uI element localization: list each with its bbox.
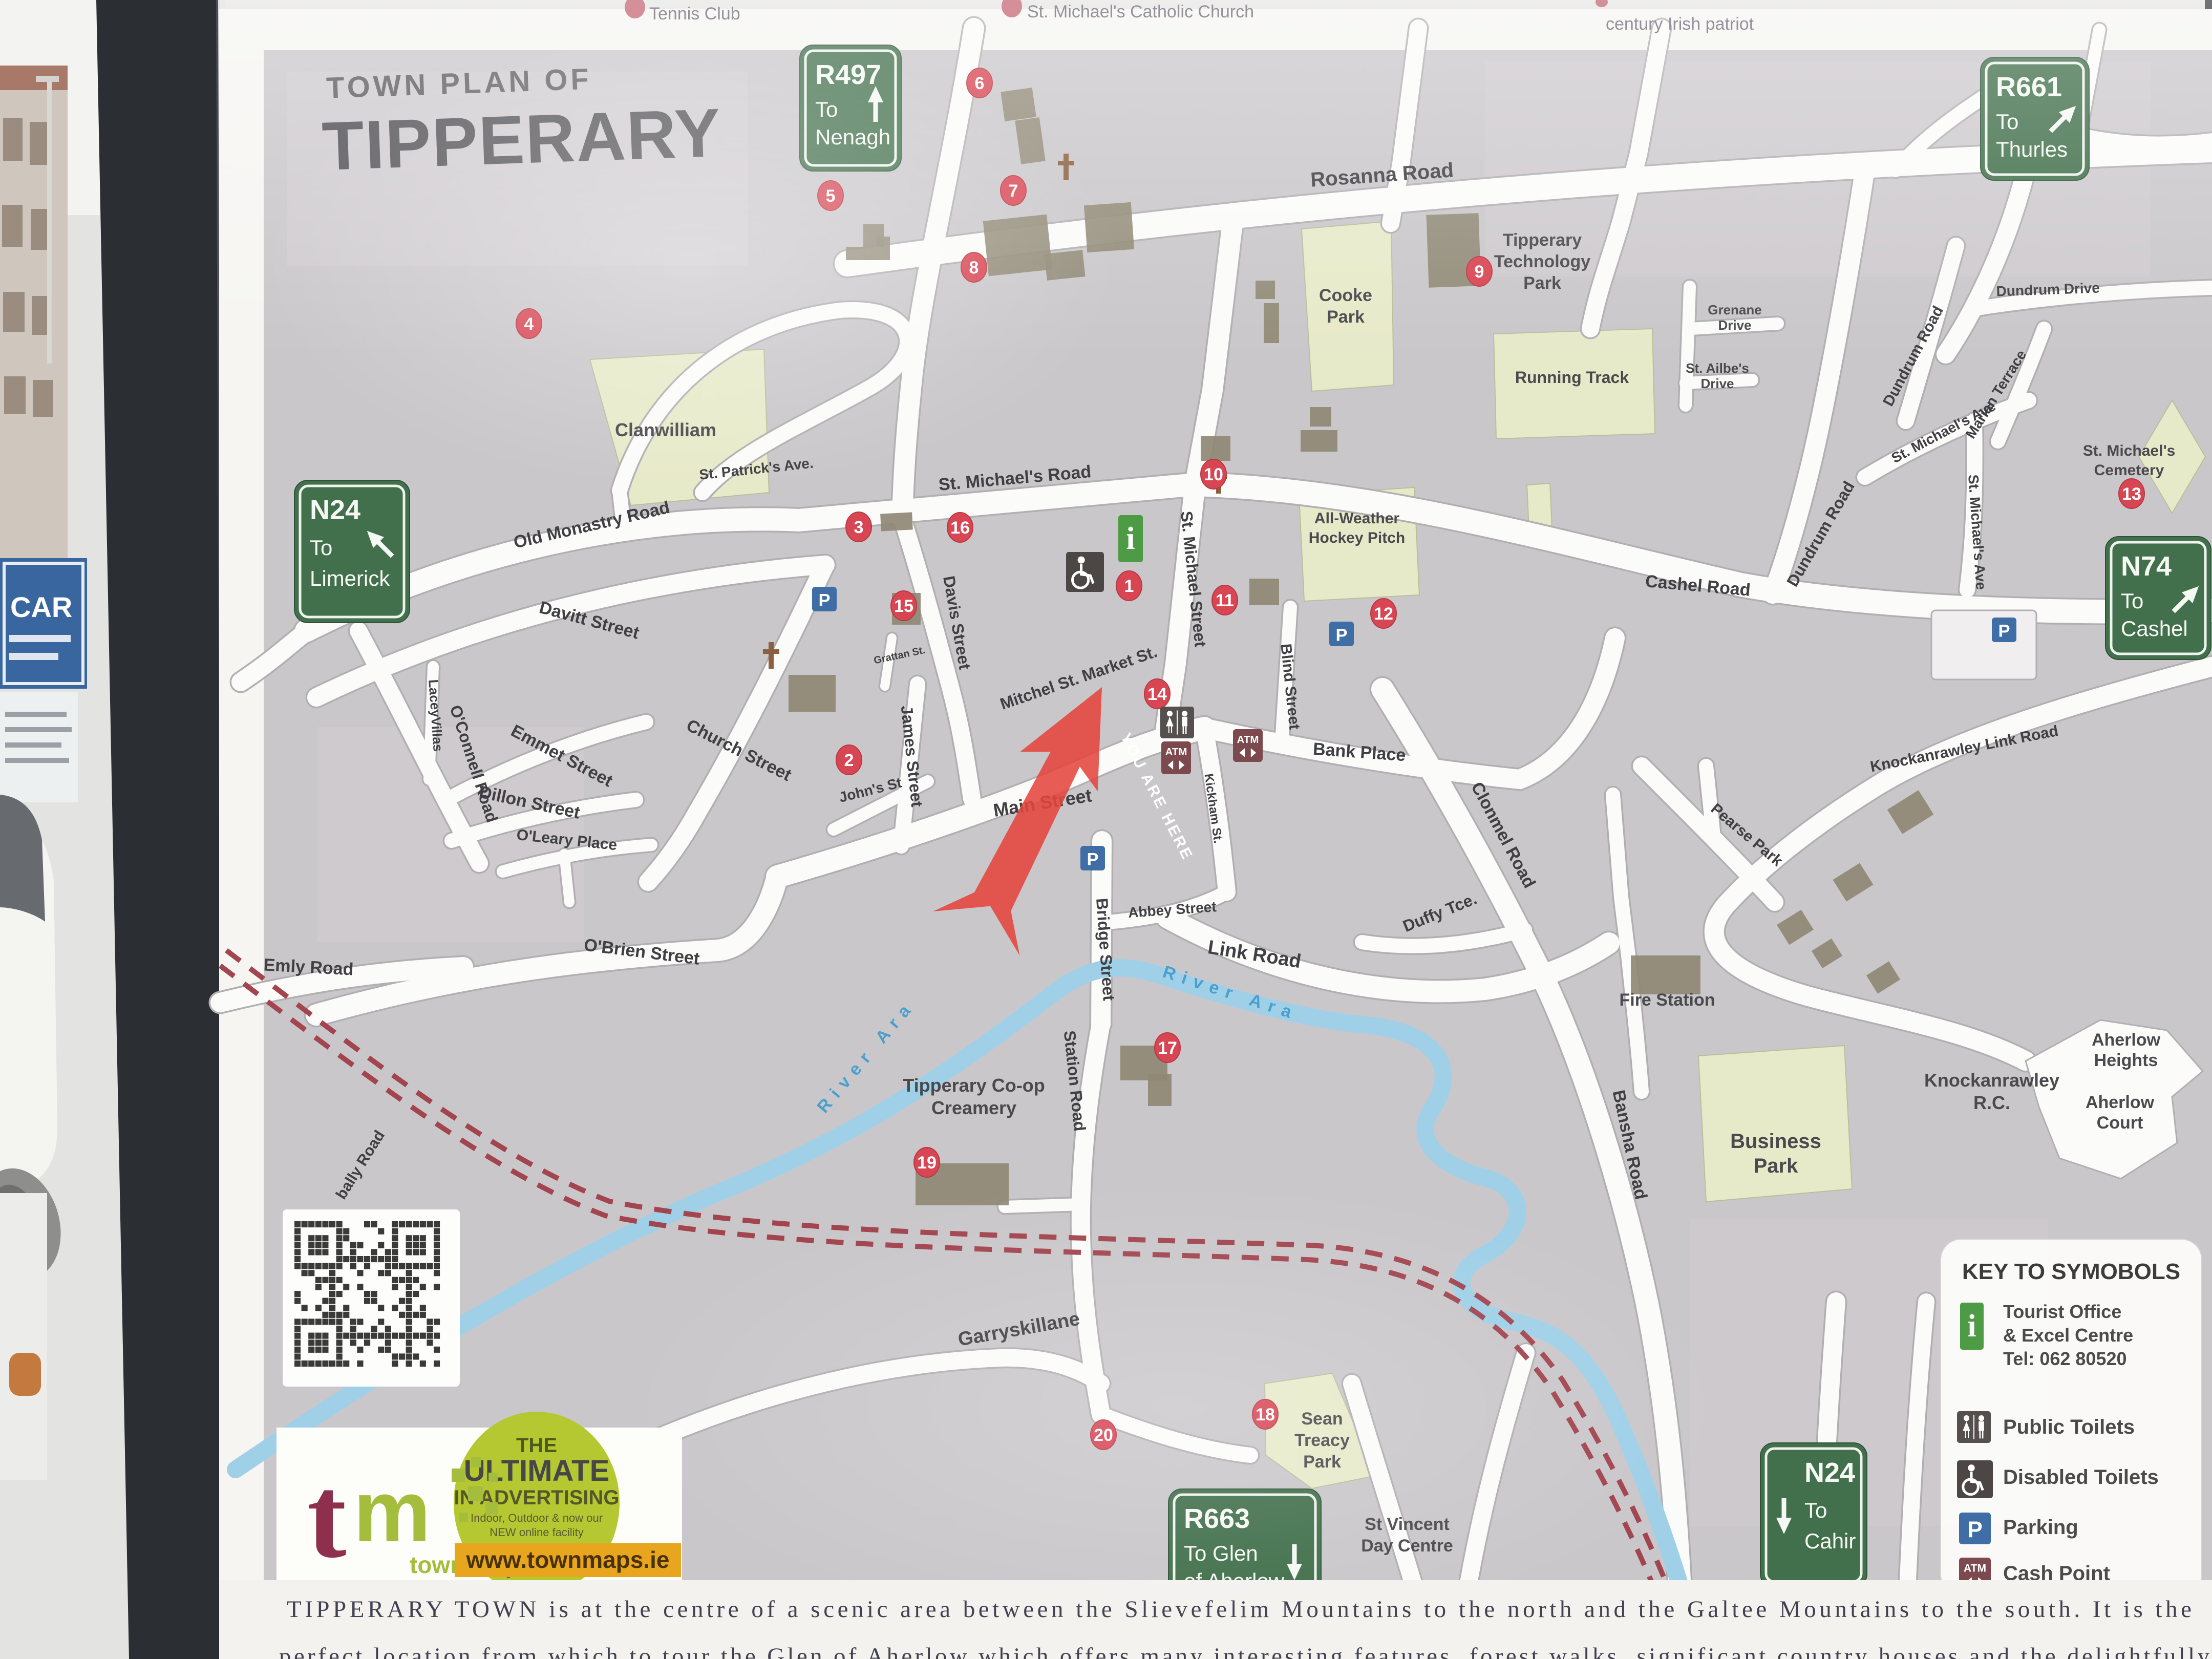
qr-code	[283, 1209, 460, 1387]
sign-destination: To	[815, 97, 838, 121]
sign-ref: N24	[310, 495, 360, 525]
building	[1310, 407, 1331, 427]
landmark-label: Clanwilliam	[615, 419, 716, 440]
park-area	[1698, 1046, 1852, 1202]
landmark-label: Park	[1523, 273, 1561, 293]
landmark-label: Treacy	[1294, 1431, 1350, 1450]
marker-number: 1	[1124, 577, 1134, 596]
top-label: century Irish patriot	[1606, 14, 1754, 34]
parking-glyph: P	[1998, 621, 2010, 641]
cash-point-icon: ATM	[1233, 729, 1263, 762]
white-info-sign	[0, 692, 78, 802]
photo-of-town-plan-board: CAR	[0, 0, 2212, 1659]
top-label: Tennis Club	[649, 4, 740, 24]
landmark-label: Day Centre	[1361, 1536, 1453, 1556]
map-marker-13: 13	[2119, 479, 2144, 508]
map-marker-2: 2	[836, 745, 862, 775]
sign-ref: R661	[1996, 72, 2062, 102]
parking-glyph: P	[818, 590, 830, 610]
legend-label: Disabled Toilets	[2003, 1466, 2159, 1488]
marker-number: 14	[1147, 685, 1167, 704]
marker-number: 11	[1216, 591, 1234, 610]
marker-number: 2	[844, 751, 854, 770]
oval-new-online: NEW online facility	[490, 1526, 583, 1539]
marker-number: 9	[1475, 262, 1484, 282]
landmark-label: Grenane	[1708, 302, 1762, 317]
landmark-label: Park	[1327, 307, 1365, 327]
landmark-label: Cemetery	[2094, 462, 2164, 479]
landmark-label: Technology	[1494, 252, 1590, 271]
marker-number: 15	[894, 597, 913, 616]
building	[1631, 955, 1700, 994]
road	[1005, 1204, 1081, 1207]
landmark-label: St Vincent	[1365, 1515, 1450, 1534]
background-building	[0, 66, 68, 558]
map-marker-19: 19	[914, 1147, 940, 1177]
marker-number: 16	[950, 518, 970, 538]
marker-number: 19	[917, 1153, 937, 1173]
legend-label: Parking	[2003, 1516, 2078, 1539]
parking-icon: P	[1959, 1513, 1991, 1544]
landmark-label: Running Track	[1515, 368, 1629, 387]
landmark-label: Creamery	[931, 1097, 1016, 1118]
landmark-label: Drive	[1700, 376, 1734, 391]
disabled-toilets-icon	[1066, 552, 1104, 592]
disabled-toilets-icon	[1957, 1460, 1993, 1498]
blue-sign-text: CAR	[10, 591, 72, 623]
map-marker-11: 11	[1212, 585, 1238, 615]
building	[1084, 202, 1134, 252]
landmark-label: Aherlow	[2086, 1093, 2155, 1112]
sign-ref: N24	[1804, 1457, 1855, 1488]
building	[1249, 579, 1279, 605]
landmark-label: St. Ailbe's	[1686, 360, 1749, 376]
road-sign-n24-5: N24ToCahir	[1760, 1443, 1867, 1587]
info-glyph: i	[1126, 520, 1135, 556]
sign-ref: R663	[1184, 1503, 1250, 1534]
public-toilets-icon	[1160, 707, 1194, 738]
building	[1264, 303, 1279, 343]
top-label: St. Michael's Catholic Church	[1027, 2, 1254, 22]
building	[1301, 430, 1337, 452]
marker-number: 8	[969, 258, 979, 278]
building	[1148, 1074, 1172, 1106]
map-canvas: CAR	[0, 0, 2212, 1659]
landmark-label: St. Michael's	[2083, 442, 2176, 459]
parking-glyph: P	[1335, 625, 1347, 645]
sign-destination: To	[1804, 1498, 1827, 1522]
marker-number: 4	[524, 314, 534, 334]
marker-number: 18	[1256, 1405, 1275, 1424]
landmark-label: Tipperary	[1503, 230, 1582, 250]
map-marker-17: 17	[1155, 1033, 1180, 1062]
sign-ref: R497	[815, 59, 881, 90]
building	[880, 512, 913, 531]
legend-label: Tourist Office	[2003, 1301, 2121, 1322]
legend-label: Public Toilets	[2003, 1416, 2135, 1438]
map-marker-18: 18	[1252, 1399, 1278, 1429]
landmark-label: Business	[1730, 1130, 1821, 1153]
map-marker-10: 10	[1201, 459, 1226, 489]
building	[877, 237, 890, 247]
title-large: TIPPERARY	[321, 95, 723, 185]
atm-glyph: ATM	[1964, 1563, 1986, 1575]
sign-destination: To	[310, 536, 332, 560]
building	[1044, 250, 1085, 281]
oval-the: THE	[516, 1434, 557, 1457]
road	[1686, 287, 1690, 406]
parking-icon: P	[1080, 846, 1105, 870]
landmark-label: Tipperary Co-op	[903, 1075, 1045, 1096]
map-marker-12: 12	[1371, 599, 1396, 628]
parking-area	[1931, 610, 2036, 679]
sign-destination: To Glen	[1184, 1541, 1258, 1565]
sign-destination: To	[1996, 110, 2018, 134]
legend-label: Tel: 062 80520	[2003, 1348, 2127, 1369]
park-area	[1302, 221, 1394, 391]
map-marker-3: 3	[846, 512, 871, 542]
map-marker-8: 8	[961, 252, 987, 282]
map-marker-7: 7	[1001, 176, 1026, 205]
building	[1256, 281, 1275, 299]
marker-number: 6	[975, 74, 985, 93]
road	[564, 854, 569, 902]
tourist-info-icon: i	[1118, 515, 1143, 562]
marker-number: 10	[1204, 465, 1223, 484]
logo-m: m	[353, 1463, 431, 1560]
landmark-label: Drive	[1718, 317, 1751, 333]
sign-destination: Nenagh	[815, 125, 890, 149]
landmark-label: Cooke	[1319, 286, 1372, 305]
marker-number: 5	[826, 186, 836, 206]
building	[789, 675, 836, 712]
map-marker-1: 1	[1116, 571, 1142, 601]
map-marker-9: 9	[1466, 257, 1492, 286]
oval-ultimate: ULTIMATE	[464, 1454, 610, 1487]
map-marker-16: 16	[947, 513, 973, 542]
marker-dot	[1596, 0, 1608, 7]
sign-destination: To	[2121, 589, 2143, 613]
landmark-label: R.C.	[1973, 1092, 2010, 1113]
landmark-label: Knockanrawley	[1924, 1070, 2059, 1091]
landmark-label: Fire Station	[1619, 990, 1715, 1010]
public-toilets-icon	[1957, 1411, 1991, 1443]
road-sign-n74-3: N74ToCashel	[2105, 537, 2211, 660]
building	[1201, 436, 1230, 461]
map-marker-4: 4	[516, 309, 542, 338]
landmark-label: Sean	[1301, 1409, 1343, 1429]
map-marker-15: 15	[891, 591, 917, 621]
road-sign-n24-2: N24ToLimerick	[294, 480, 410, 623]
sign-ref: N74	[2121, 551, 2172, 582]
key-to-symbols-panel: KEY TO SYMOBOLSiPATMTourist Office& Exce…	[1941, 1239, 2202, 1595]
atm-glyph: ATM	[1165, 746, 1187, 758]
marker-number: 13	[2122, 484, 2141, 504]
sign-destination: Cashel	[2121, 616, 2188, 641]
map-marker-6: 6	[967, 68, 992, 98]
map-marker-5: 5	[818, 181, 843, 210]
map-marker-20: 20	[1091, 1420, 1116, 1450]
parking-icon: P	[812, 587, 837, 611]
landmark-label: All-Weather	[1314, 510, 1399, 527]
footer-paragraph: TIPPERARY TOWN is at the centre of a sce…	[219, 1580, 2212, 1659]
sign-destination: Limerick	[310, 566, 390, 590]
sign-destination: Thurles	[1996, 137, 2068, 161]
road-sign-r497-0: R497ToNenagh	[800, 45, 901, 171]
marker-number: 20	[1094, 1426, 1113, 1445]
parking-icon: P	[1992, 618, 2016, 642]
landmark-label: Court	[2097, 1113, 2143, 1133]
marker-number: 7	[1009, 181, 1018, 201]
townmaps-url: www.townmaps.ie	[465, 1546, 669, 1573]
landmark-label: Hockey Pitch	[1309, 529, 1405, 546]
building	[1001, 88, 1036, 121]
parking-glyph: P	[1967, 1517, 1983, 1542]
sign-destination: Cahir	[1804, 1529, 1856, 1553]
tourist-info-icon: i	[1960, 1303, 1984, 1350]
landmark-label: Park	[1303, 1452, 1341, 1472]
blue-street-sign: CAR	[0, 558, 87, 689]
cash-point-icon: ATM	[1161, 741, 1191, 774]
logo-t: t	[307, 1452, 347, 1582]
landmark-label: Heights	[2094, 1051, 2158, 1070]
building	[846, 247, 890, 260]
map-marker-14: 14	[1144, 679, 1170, 709]
marker-number: 12	[1374, 604, 1393, 624]
marker-number: 17	[1158, 1038, 1177, 1058]
parking-icon: P	[1329, 622, 1354, 646]
marker-number: 3	[854, 518, 864, 537]
info-glyph: i	[1967, 1308, 1976, 1344]
road	[1706, 766, 1713, 836]
road-sign-r661-1: R661ToThurles	[1981, 57, 2089, 180]
legend-label: & Excel Centre	[2003, 1325, 2133, 1346]
parking-glyph: P	[1087, 849, 1098, 869]
townmaps-branding: THE ULTIMATE IN ADVERTISING Indoor, Outd…	[276, 1412, 682, 1594]
atm-glyph: ATM	[1237, 734, 1259, 746]
legend-title: KEY TO SYMOBOLS	[1962, 1259, 2180, 1284]
landmark-label: Park	[1754, 1155, 1798, 1177]
building	[983, 215, 1053, 276]
car-reflector	[9, 1353, 41, 1396]
landmark-label: Aherlow	[2092, 1030, 2161, 1050]
